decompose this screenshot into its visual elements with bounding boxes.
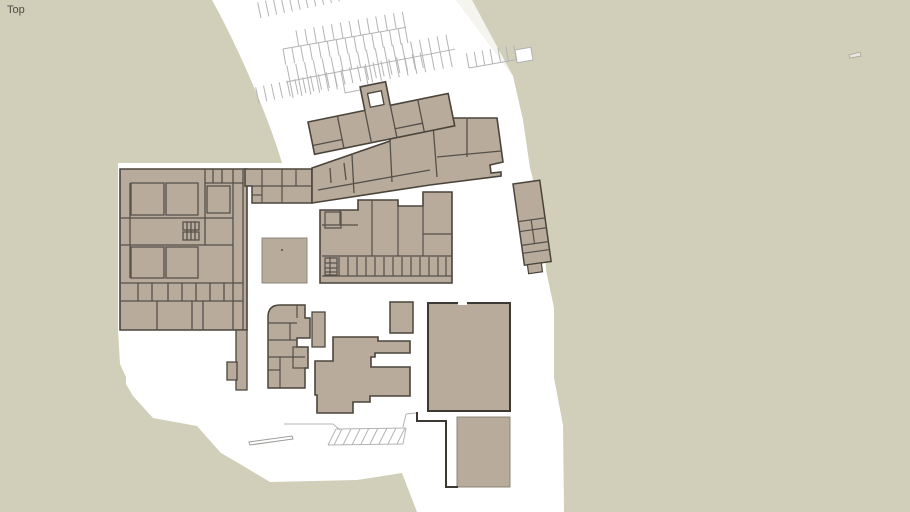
cluster-annex[interactable] bbox=[312, 312, 325, 347]
left-complex-footprint[interactable] bbox=[120, 169, 247, 330]
building-small-hall[interactable] bbox=[390, 302, 413, 333]
viewport[interactable]: Top bbox=[0, 0, 910, 512]
plaza-dot[interactable] bbox=[281, 249, 283, 251]
corridor-strip-hook[interactable] bbox=[227, 362, 237, 380]
east-wing-porch[interactable] bbox=[527, 263, 542, 274]
building-left-complex[interactable] bbox=[120, 169, 247, 330]
gym-notch[interactable] bbox=[458, 301, 467, 305]
parking-shed-cell[interactable] bbox=[515, 47, 533, 63]
corridor-strip-footprint[interactable] bbox=[236, 330, 247, 390]
plaza-slab[interactable] bbox=[262, 238, 307, 283]
view-label: Top bbox=[7, 3, 25, 17]
building-link-block[interactable] bbox=[245, 169, 312, 203]
gym-footprint[interactable] bbox=[428, 303, 510, 411]
north-wing-court[interactable] bbox=[368, 91, 385, 108]
parking-shed[interactable] bbox=[515, 47, 533, 63]
building-aux-hall[interactable] bbox=[457, 417, 510, 487]
viewport-canvas[interactable] bbox=[0, 0, 910, 512]
building-gym[interactable] bbox=[428, 301, 510, 411]
plaza-pad[interactable] bbox=[262, 238, 307, 283]
